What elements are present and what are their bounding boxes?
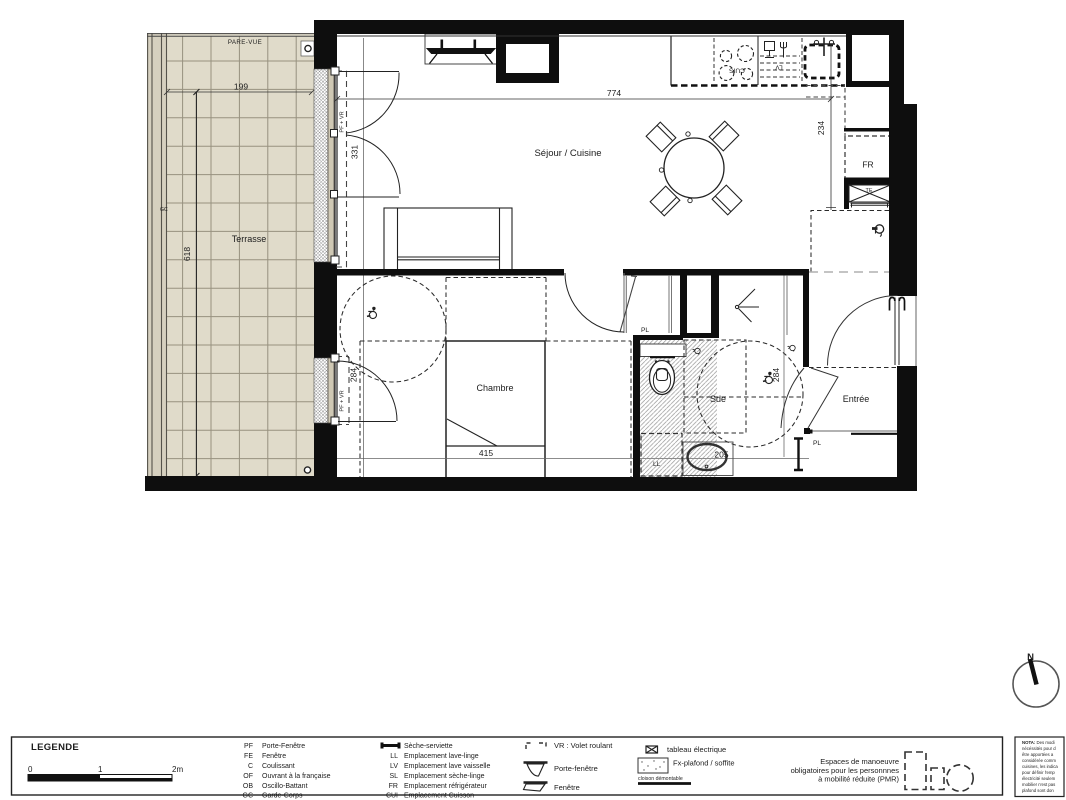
svg-text:GC: GC: [243, 793, 254, 800]
svg-text:considérée comm: considérée comm: [1022, 758, 1056, 763]
svg-text:Terrasse: Terrasse: [232, 234, 267, 244]
svg-text:PF: PF: [244, 743, 253, 750]
svg-text:OB: OB: [243, 783, 253, 790]
svg-text:284: 284: [349, 368, 359, 382]
svg-text:PARE-VUE: PARE-VUE: [228, 39, 262, 46]
svg-text:Garde-Corps: Garde-Corps: [262, 793, 303, 800]
svg-text:LV: LV: [390, 763, 398, 770]
svg-text:PF + VR: PF + VR: [340, 390, 346, 411]
svg-text:Sèche-serviette: Sèche-serviette: [404, 743, 453, 750]
svg-text:Espaces de manoeuvre: Espaces de manoeuvre: [820, 757, 899, 766]
svg-text:Séjour / Cuisine: Séjour / Cuisine: [534, 148, 601, 159]
svg-text:N: N: [1027, 652, 1034, 663]
svg-text:LEGENDE: LEGENDE: [31, 742, 79, 753]
svg-text:plafond sont don: plafond sont don: [1022, 788, 1054, 793]
svg-text:Emplacement lave vaisselle: Emplacement lave vaisselle: [404, 763, 490, 770]
svg-text:Oscillo-Battant: Oscillo-Battant: [262, 783, 308, 790]
svg-text:Sde: Sde: [710, 394, 726, 404]
svg-text:FR: FR: [862, 160, 873, 170]
svg-text:1: 1: [98, 765, 103, 774]
svg-text:Porte-fenêtre: Porte-fenêtre: [554, 764, 598, 773]
svg-text:199: 199: [234, 82, 248, 92]
svg-text:être apportées a: être apportées a: [1022, 752, 1054, 757]
svg-text:PF + VR: PF + VR: [340, 111, 346, 132]
svg-text:cuisines, les indica: cuisines, les indica: [1022, 764, 1058, 769]
svg-text:à mobilité réduite (PMR): à mobilité réduite (PMR): [818, 775, 899, 784]
svg-text:LV: LV: [775, 64, 783, 71]
svg-text:234: 234: [816, 121, 826, 135]
svg-text:PL: PL: [813, 440, 821, 447]
svg-text:774: 774: [607, 88, 621, 98]
svg-text:mobilier n'est pas: mobilier n'est pas: [1022, 782, 1055, 787]
svg-text:pour définir l'emp: pour définir l'emp: [1022, 770, 1055, 775]
svg-text:nécéssités pour d: nécéssités pour d: [1022, 746, 1056, 751]
svg-text:VR : Volet roulant: VR : Volet roulant: [554, 741, 613, 750]
svg-text:TE: TE: [866, 188, 873, 194]
svg-text:415: 415: [479, 448, 493, 458]
svg-text:Emplacement Cuisson: Emplacement Cuisson: [404, 793, 474, 800]
svg-text:FR: FR: [389, 783, 398, 790]
svg-text:LL: LL: [390, 753, 398, 760]
svg-text:NOTA: Des modi: NOTA: Des modi: [1022, 740, 1055, 745]
svg-text:331: 331: [350, 145, 360, 159]
svg-text:Fenêtre: Fenêtre: [262, 753, 286, 760]
svg-text:C: C: [248, 763, 253, 770]
svg-text:Chambre: Chambre: [476, 383, 513, 393]
svg-text:618: 618: [182, 247, 192, 261]
svg-text:Fenêtre: Fenêtre: [554, 783, 580, 792]
svg-text:Fx-plafond / soffite: Fx-plafond / soffite: [673, 759, 735, 768]
svg-text:205: 205: [714, 450, 728, 460]
svg-text:Coulissant: Coulissant: [262, 763, 295, 770]
svg-text:électricité seulem: électricité seulem: [1022, 776, 1056, 781]
svg-text:0: 0: [28, 765, 33, 774]
svg-text:Porte-Fenêtre: Porte-Fenêtre: [262, 743, 305, 750]
svg-text:Emplacement sèche-linge: Emplacement sèche-linge: [404, 773, 485, 780]
svg-text:Entrée: Entrée: [843, 394, 870, 404]
svg-text:GC: GC: [160, 207, 168, 213]
svg-text:OF: OF: [243, 773, 253, 780]
svg-text:SL: SL: [389, 773, 398, 780]
svg-text:FE: FE: [244, 753, 253, 760]
svg-text:CUIS: CUIS: [729, 67, 745, 74]
svg-text:tableau électrique: tableau électrique: [667, 745, 726, 754]
svg-text:Ouvrant à la française: Ouvrant à la française: [262, 773, 331, 780]
svg-text:cloison démontable: cloison démontable: [638, 776, 683, 782]
svg-text:2m: 2m: [172, 765, 183, 774]
svg-text:284: 284: [771, 368, 781, 382]
svg-text:CUI: CUI: [386, 793, 398, 800]
svg-text:LL: LL: [653, 461, 661, 468]
svg-text:PL: PL: [641, 327, 649, 334]
svg-text:Emplacement lave-linge: Emplacement lave-linge: [404, 753, 479, 760]
svg-text:Emplacement réfrigérateur: Emplacement réfrigérateur: [404, 783, 488, 790]
